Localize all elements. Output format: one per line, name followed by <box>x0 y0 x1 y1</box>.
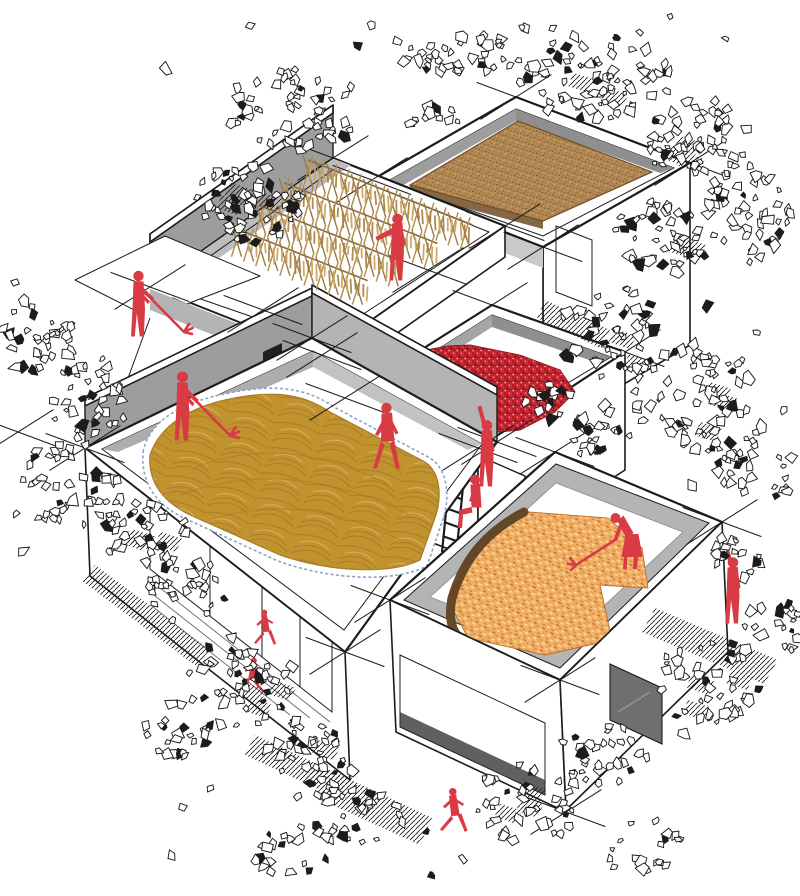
illustration-canvas <box>0 0 800 896</box>
axonometric-scene <box>0 0 800 896</box>
